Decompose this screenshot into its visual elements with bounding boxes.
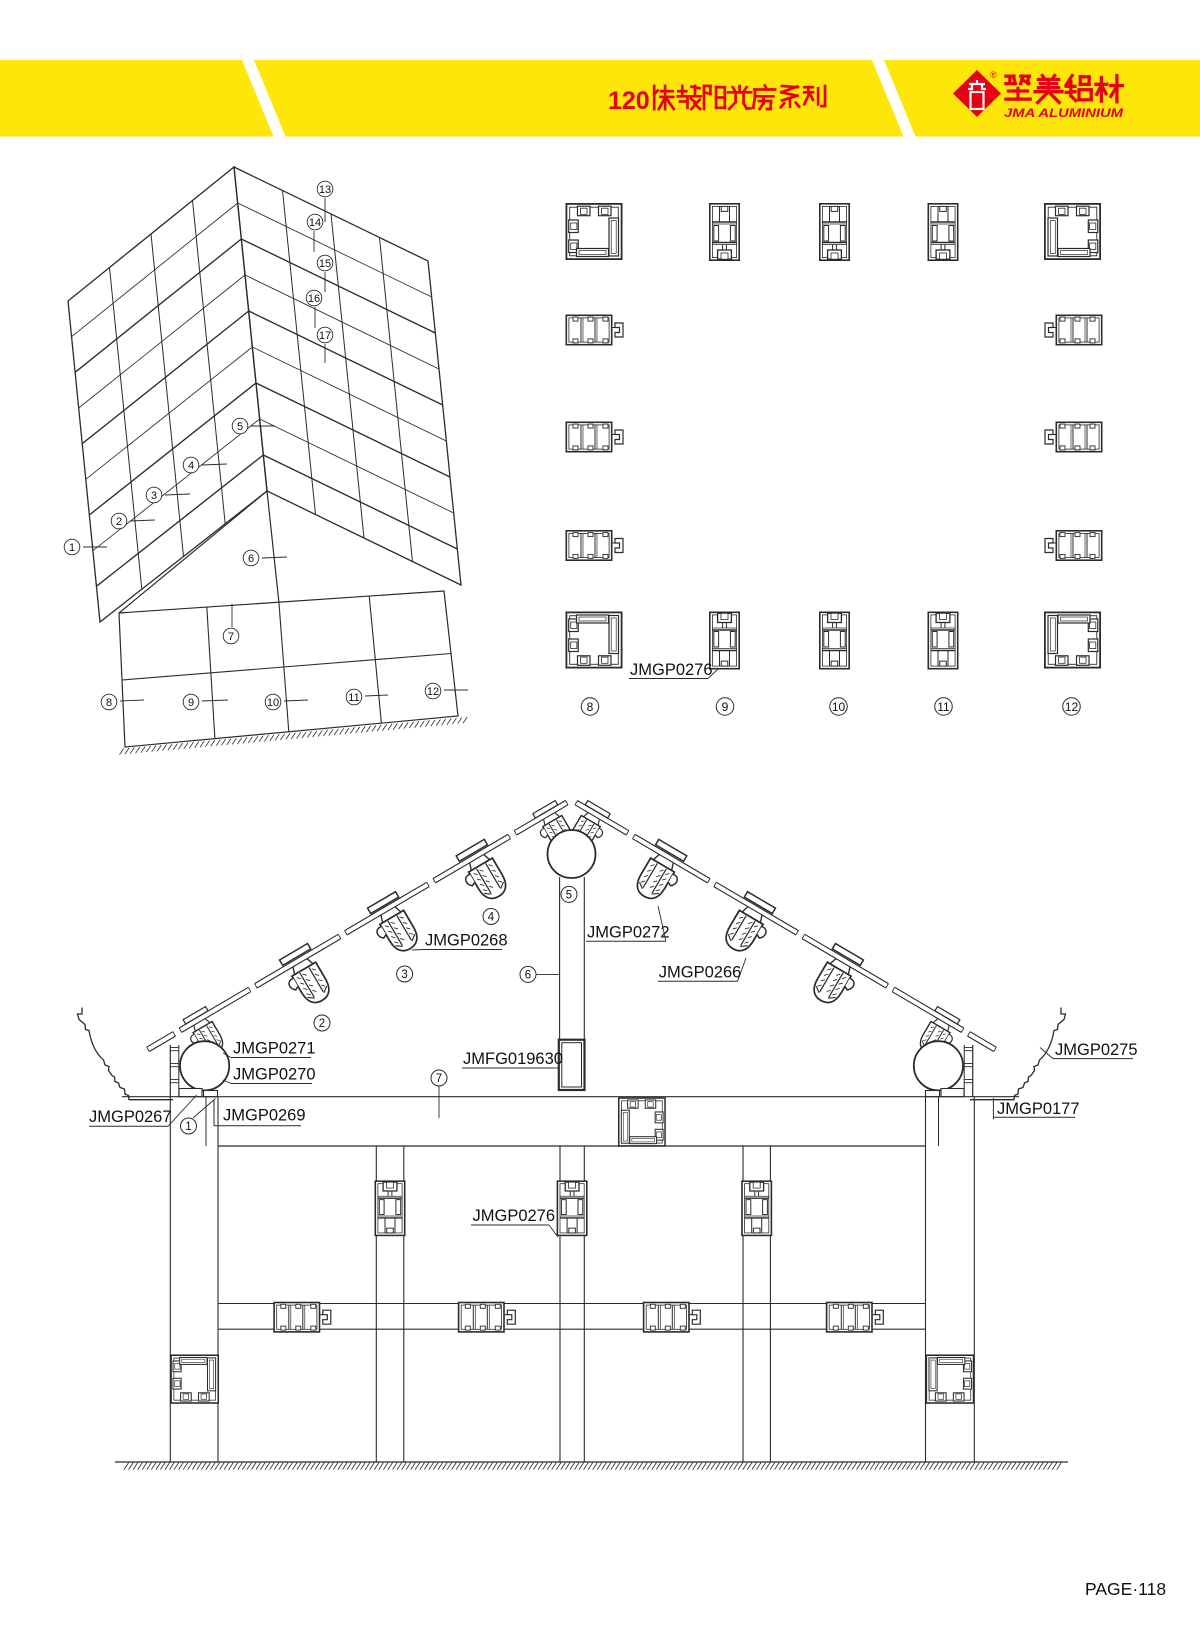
svg-text:120: 120 [608, 87, 650, 115]
svg-text:PAGE·118: PAGE·118 [1085, 1579, 1166, 1599]
svg-text:6: 6 [248, 553, 254, 565]
svg-text:2: 2 [116, 516, 122, 528]
svg-text:3: 3 [401, 969, 407, 981]
svg-text:12: 12 [427, 686, 439, 698]
svg-text:16: 16 [308, 293, 320, 305]
svg-text:4: 4 [488, 912, 495, 924]
svg-text:JMGP0270: JMGP0270 [233, 1066, 316, 1084]
svg-text:13: 13 [319, 184, 331, 196]
svg-text:14: 14 [309, 217, 321, 229]
svg-text:9: 9 [188, 697, 194, 709]
svg-text:4: 4 [188, 460, 194, 472]
svg-text:2: 2 [319, 1018, 325, 1030]
svg-text:8: 8 [587, 700, 594, 714]
svg-text:JMGP0276: JMGP0276 [630, 661, 713, 679]
svg-text:JMGP0267: JMGP0267 [89, 1108, 172, 1126]
svg-text:JMGP0271: JMGP0271 [233, 1040, 316, 1058]
svg-text:11: 11 [348, 692, 359, 704]
svg-text:JMGP0272: JMGP0272 [587, 924, 670, 942]
svg-text:6: 6 [525, 970, 531, 982]
svg-text:®: ® [990, 70, 997, 80]
svg-text:10: 10 [832, 700, 846, 714]
svg-text:12: 12 [1065, 700, 1079, 714]
svg-text:7: 7 [228, 631, 234, 643]
svg-text:JMGP0269: JMGP0269 [223, 1107, 306, 1125]
svg-text:7: 7 [436, 1073, 442, 1085]
svg-text:1: 1 [185, 1121, 191, 1133]
svg-text:8: 8 [106, 697, 112, 709]
svg-text:JMGP0275: JMGP0275 [1055, 1041, 1138, 1059]
svg-text:10: 10 [267, 697, 279, 709]
svg-text:15: 15 [319, 258, 331, 270]
svg-text:9: 9 [722, 700, 729, 714]
svg-text:1: 1 [69, 542, 75, 554]
svg-text:JMGP0266: JMGP0266 [659, 964, 742, 982]
svg-text:JMFG019630: JMFG019630 [463, 1050, 563, 1068]
svg-text:11: 11 [937, 700, 950, 714]
svg-text:JMGP0177: JMGP0177 [997, 1100, 1080, 1118]
svg-text:JMGP0268: JMGP0268 [425, 932, 508, 950]
svg-text:JMGP0276: JMGP0276 [473, 1207, 556, 1225]
svg-text:3: 3 [151, 490, 157, 502]
svg-text:5: 5 [237, 421, 243, 433]
svg-text:5: 5 [566, 890, 572, 902]
svg-text:JMA ALUMINIUM: JMA ALUMINIUM [1004, 106, 1124, 120]
svg-text:17: 17 [319, 330, 331, 342]
